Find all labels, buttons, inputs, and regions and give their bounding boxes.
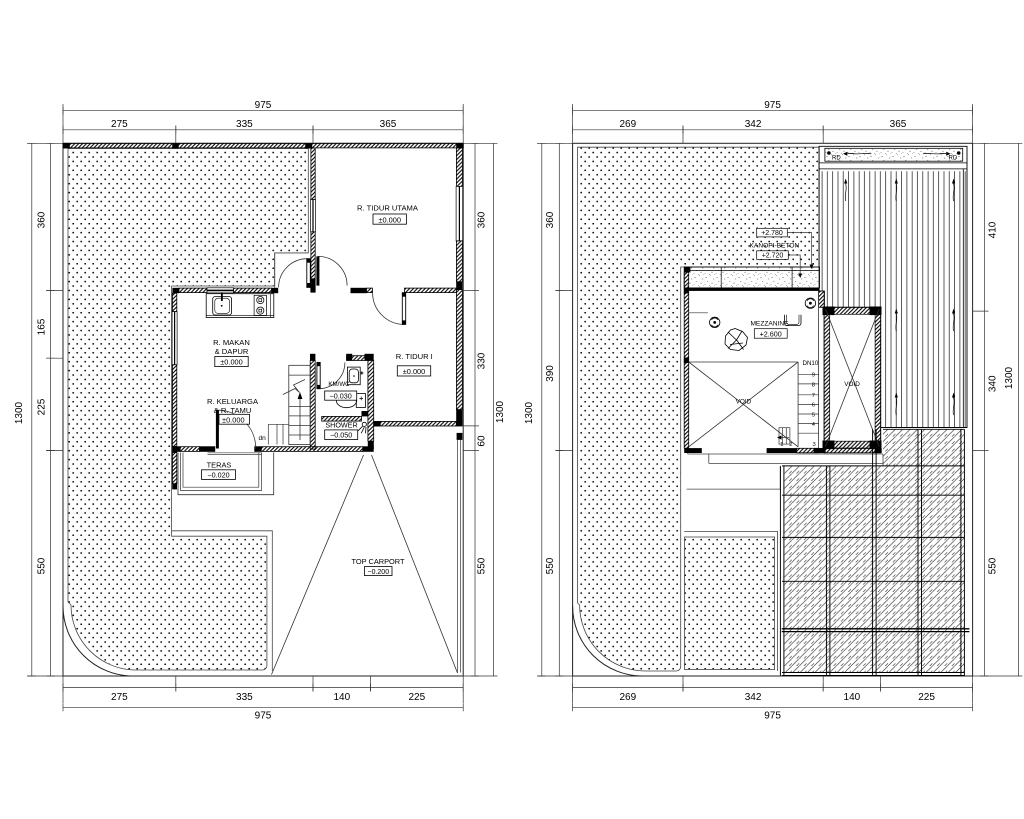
svg-text:365: 365: [380, 119, 397, 130]
svg-text:6: 6: [812, 403, 815, 409]
svg-text:342: 342: [745, 692, 762, 703]
svg-text:9: 9: [812, 372, 815, 378]
svg-text:3: 3: [813, 442, 816, 448]
svg-text:390: 390: [545, 365, 556, 382]
svg-text:RD: RD: [949, 156, 958, 162]
svg-text:225: 225: [408, 692, 425, 703]
svg-text:165: 165: [37, 318, 48, 335]
svg-text:±0.000: ±0.000: [378, 215, 401, 224]
svg-text:550: 550: [988, 557, 999, 574]
svg-text:& R. TAMU: & R. TAMU: [214, 406, 252, 415]
svg-text:dn: dn: [259, 435, 267, 442]
svg-text:R. TIDUR I: R. TIDUR I: [396, 352, 433, 361]
svg-text:2: 2: [789, 442, 792, 448]
svg-text:RD: RD: [832, 156, 841, 162]
svg-text:TOP CARPORT: TOP CARPORT: [352, 557, 405, 566]
svg-text:1300: 1300: [1004, 366, 1015, 389]
svg-text:8: 8: [812, 382, 815, 388]
svg-text:R. TIDUR UTAMA: R. TIDUR UTAMA: [357, 204, 419, 213]
svg-text:R. MAKAN: R. MAKAN: [213, 338, 250, 347]
svg-text:−0.200: −0.200: [367, 569, 389, 576]
svg-text:550: 550: [37, 557, 48, 574]
svg-text:330: 330: [477, 352, 488, 369]
svg-text:975: 975: [764, 100, 781, 111]
svg-text:1300: 1300: [495, 400, 506, 423]
svg-text:275: 275: [111, 119, 128, 130]
svg-text:225: 225: [37, 398, 48, 415]
svg-text:360: 360: [37, 211, 48, 228]
svg-text:269: 269: [619, 692, 636, 703]
svg-text:140: 140: [844, 692, 861, 703]
svg-text:1300: 1300: [14, 401, 25, 424]
svg-text:−0.020: −0.020: [207, 471, 229, 480]
svg-text:& DAPUR: & DAPUR: [215, 347, 249, 356]
svg-text:+2.600: +2.600: [760, 329, 782, 338]
svg-text:KM/WC: KM/WC: [328, 381, 350, 388]
svg-text:60: 60: [477, 435, 488, 447]
svg-text:R. KELUARGA: R. KELUARGA: [207, 397, 259, 406]
svg-text:975: 975: [255, 711, 272, 722]
svg-text:VOID: VOID: [844, 381, 860, 388]
svg-text:360: 360: [477, 211, 488, 228]
svg-text:DN10: DN10: [803, 360, 819, 367]
svg-text:7: 7: [812, 393, 815, 399]
svg-text:±0.000: ±0.000: [403, 367, 426, 376]
svg-text:225: 225: [918, 692, 935, 703]
svg-text:−0.050: −0.050: [330, 431, 352, 440]
svg-text:1: 1: [780, 442, 783, 448]
svg-text:410: 410: [988, 221, 999, 238]
svg-text:550: 550: [477, 557, 488, 574]
svg-text:342: 342: [745, 119, 762, 130]
svg-text:340: 340: [988, 375, 999, 392]
svg-text:+2.780: +2.780: [761, 230, 783, 237]
svg-text:550: 550: [545, 557, 556, 574]
svg-text:−0.030: −0.030: [330, 392, 352, 401]
svg-text:335: 335: [236, 692, 253, 703]
svg-text:+2.720: +2.720: [762, 253, 784, 260]
svg-text:975: 975: [255, 100, 272, 111]
svg-text:±0.000: ±0.000: [222, 415, 245, 424]
svg-text:5: 5: [812, 413, 815, 419]
svg-text:MEZZANINE: MEZZANINE: [750, 320, 789, 327]
svg-text:269: 269: [619, 119, 636, 130]
svg-text:VOID: VOID: [736, 399, 752, 406]
svg-text:1300: 1300: [524, 401, 535, 424]
svg-text:±0.000: ±0.000: [220, 358, 243, 367]
svg-text:275: 275: [111, 692, 128, 703]
svg-text:360: 360: [545, 211, 556, 228]
svg-text:SHOWER: SHOWER: [325, 421, 357, 430]
svg-text:335: 335: [236, 119, 253, 130]
svg-text:365: 365: [890, 119, 907, 130]
svg-text:140: 140: [333, 692, 350, 703]
svg-text:KANOPI-BETON: KANOPI-BETON: [750, 242, 800, 249]
svg-text:TERAS: TERAS: [207, 461, 232, 470]
svg-text:975: 975: [764, 711, 781, 722]
